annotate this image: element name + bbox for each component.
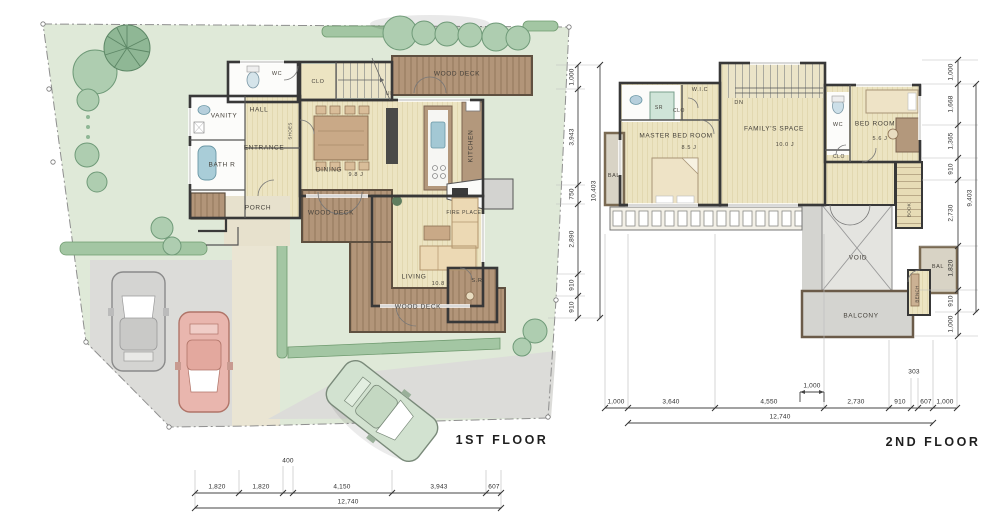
dim-2f-bottom-1: 3,640: [662, 399, 679, 406]
dining-table: [314, 116, 368, 160]
dim-2f-right-6: 910: [948, 295, 955, 306]
room-label-sr-2f: SR: [655, 105, 663, 111]
dim-2f-bottom-7: 1,000: [936, 399, 953, 406]
dim-1f-bottom-0: 1,820: [208, 484, 225, 491]
room-label-bal-left: BAL: [608, 173, 620, 179]
room-label-wood-deck-mid: WOOD DECK: [308, 210, 354, 217]
dim-2f-right-7: 1,000: [948, 315, 955, 332]
approach-path: [232, 238, 280, 426]
stair-label-up: UP: [386, 91, 394, 97]
room-size-master: 8.5 J: [682, 145, 697, 151]
car-pink: [175, 312, 233, 412]
room-label-clo-right-2f: CLO: [833, 154, 845, 160]
stair-label-dn: DN: [734, 100, 743, 106]
dim-1f-bottom-total: 12,740: [337, 499, 358, 506]
service-deck: [191, 193, 225, 219]
pillar: [386, 108, 398, 164]
desk-chair: [888, 129, 898, 139]
louver-deck: [610, 207, 802, 230]
dim-1f-right-3: 2,890: [569, 230, 576, 247]
room-label-book: BOOK: [907, 203, 912, 217]
room-label-living: LIVING: [402, 274, 427, 281]
fireplace-exterior: [483, 179, 513, 209]
dim-2f-right-0: 1,000: [948, 63, 955, 80]
room-label-wc-2f: WC: [833, 122, 843, 128]
palm-tree: [104, 25, 150, 71]
title-first-floor: 1ST FLOOR: [456, 433, 549, 447]
kitchen-sink: [431, 122, 445, 148]
room-label-entrance: ENTRANCE: [244, 145, 285, 152]
dim-2f-bottom-2: 4,550: [760, 399, 777, 406]
car-gray: [108, 272, 169, 371]
room-label-shoes: SHOES: [288, 122, 293, 139]
dim-2f-right-total: 9,403: [967, 189, 974, 206]
toilet-icon: [247, 72, 259, 88]
room-label-hall: HALL: [250, 107, 269, 114]
coffee-table: [424, 226, 450, 240]
dim-1f-right-2: 750: [569, 188, 576, 199]
room-label-wc-1f: WC: [272, 71, 282, 77]
dim-1f-bottom-1: 1,820: [252, 484, 269, 491]
room-label-clo-left-2f: CLO: [673, 108, 685, 114]
dim-1f-right-0: 1,000: [569, 68, 576, 85]
room-label-fireplace: FIRE PLACE: [446, 210, 481, 216]
room-size-dining: 9.8 J: [349, 172, 364, 178]
room-label-wood-deck-top: WOOD DECK: [434, 71, 480, 78]
desk: [896, 118, 920, 152]
dim-1f-bottom-4: 3,943: [430, 484, 447, 491]
room-label-wic: W.I.C: [692, 87, 708, 93]
room-label-dining: DINING: [316, 167, 342, 174]
room-label-vanity: VANITY: [211, 113, 238, 120]
dim-2f-right-4: 2,730: [948, 204, 955, 221]
floor-plan-drawing: WC CLO WOOD DECK HALL VANITY BATH R ENTR…: [0, 0, 1000, 527]
plant-icon: [392, 196, 402, 206]
dim-1f-right-1: 3,943: [569, 128, 576, 145]
room-label-bedroom: BED ROOM: [855, 121, 895, 128]
dim-2f-bottom-total: 12,740: [769, 414, 790, 421]
dim-1f-bottom-3: 4,150: [333, 484, 350, 491]
room-size-bedroom: 5.6 J: [873, 136, 888, 142]
dim-2f-right-1: 1,668: [948, 95, 955, 112]
room-label-balcony: BALCONY: [843, 313, 878, 320]
dim-1f-right-4: 910: [569, 279, 576, 290]
sink-icon-2f: [630, 96, 642, 105]
dim-1f-right-total: 10,403: [591, 180, 598, 201]
porch-floor: [224, 196, 290, 246]
room-label-bench: BENCH: [915, 285, 920, 302]
room-label-study: S.R: [472, 278, 483, 284]
room-size-living: 10.8 J: [432, 281, 451, 287]
room-label-porch: PORCH: [245, 205, 271, 212]
room-label-master-bedroom: MASTER BED ROOM: [639, 133, 712, 140]
dim-2f-bottom-4: 910: [894, 399, 905, 406]
dim-2f-right-5: 1,820: [948, 259, 955, 276]
sink-icon: [198, 106, 210, 115]
dim-2f-right-2: 1,365: [948, 132, 955, 149]
room-label-bal-right: BAL: [932, 264, 944, 270]
room-label-bath: BATH R: [209, 162, 236, 169]
dim-1f-bottom-2: 400: [282, 458, 293, 465]
dim-2f-bottom-3: 2,730: [847, 399, 864, 406]
dim-1f-bottom-5: 607: [488, 484, 499, 491]
study-chair: [466, 292, 474, 300]
room-label-void: VOID: [849, 255, 867, 262]
dim-2f-right-3: 910: [948, 163, 955, 174]
dim-2f-bottom-5: 303: [908, 369, 919, 376]
room-label-clo-1f: CLO: [311, 79, 324, 85]
room-label-familys-space: FAMILY'S SPACE: [744, 126, 804, 133]
book-shelf: [896, 162, 922, 228]
plan-canvas: [0, 0, 1000, 527]
room-label-wood-deck-bottom: WOOD DECK: [395, 304, 441, 311]
room-size-family: 10.0 J: [776, 142, 795, 148]
dim-2f-bottom-6: 607: [920, 399, 931, 406]
dim-1f-right-5: 910: [569, 301, 576, 312]
dim-2f-bottom-0: 1,000: [607, 399, 624, 406]
dim-2f-bottom-sub: 1,000: [803, 383, 820, 390]
title-second-floor: 2ND FLOOR: [886, 435, 981, 449]
room-label-kitchen: KITCHEN: [468, 130, 475, 163]
